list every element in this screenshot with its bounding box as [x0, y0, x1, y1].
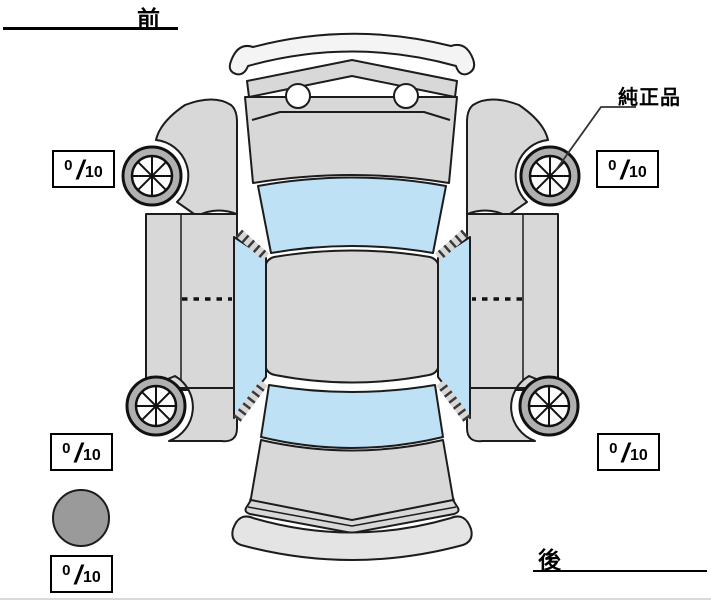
spare-tire-icon: [52, 489, 110, 547]
headlight-left-icon: [286, 84, 310, 108]
front-left-tread-depth-box: 0 / 10: [52, 150, 115, 188]
headlight-right-icon: [394, 84, 418, 108]
tread-max: 10: [83, 447, 101, 465]
front-left-wheel-icon: [123, 147, 181, 205]
windshield: [258, 178, 446, 254]
tread-separator: /: [75, 438, 83, 469]
tread-max: 10: [629, 164, 647, 182]
rear-window: [261, 385, 443, 448]
tread-max: 10: [83, 569, 101, 587]
tread-separator: /: [621, 155, 629, 186]
rear-right-tread-depth-box: 0 / 10: [597, 433, 660, 471]
tread-separator: /: [75, 560, 83, 591]
rear-left-wheel-icon: [127, 377, 185, 435]
tread-separator: /: [622, 438, 630, 469]
front-underline: [3, 27, 178, 30]
vehicle-inspection-diagram: 前 後 純正品 0 / 10 0 / 10 0 / 10 0 / 10 0 / …: [0, 0, 711, 600]
front-right-tread-depth-box: 0 / 10: [596, 150, 659, 188]
hood: [245, 97, 457, 183]
rear-underline: [533, 570, 707, 572]
roof: [265, 251, 439, 383]
tread-value: 0: [64, 157, 72, 174]
tread-max: 10: [630, 447, 648, 465]
rear-right-wheel-icon: [520, 377, 578, 435]
tread-value: 0: [62, 440, 70, 457]
rear-left-tread-depth-box: 0 / 10: [50, 433, 113, 471]
tread-separator: /: [77, 155, 85, 186]
front-right-wheel-icon: [521, 147, 579, 205]
tread-max: 10: [85, 164, 103, 182]
tread-value: 0: [62, 562, 70, 579]
tread-value: 0: [609, 440, 617, 457]
genuine-part-label: 純正品: [618, 81, 681, 110]
tread-value: 0: [608, 157, 616, 174]
spare-tread-depth-box: 0 / 10: [50, 555, 113, 593]
